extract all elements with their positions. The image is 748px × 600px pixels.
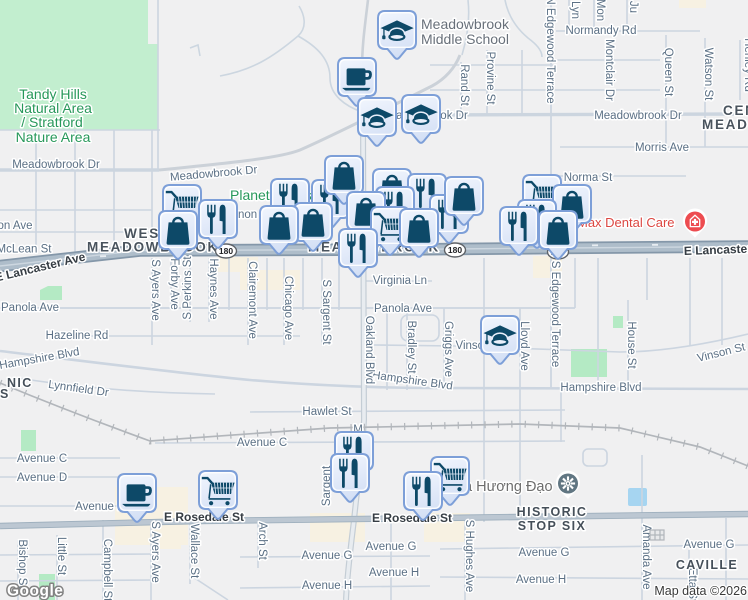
svg-text:on Ave: on Ave — [0, 220, 32, 232]
svg-text:Campbell St: Campbell St — [101, 539, 113, 600]
svg-text:S Edgewood Terrace: S Edgewood Terrace — [549, 261, 561, 368]
svg-text:E Rosedale St: E Rosedale St — [372, 511, 452, 525]
svg-text:Ju: Ju — [627, 1, 639, 13]
svg-text:Little St: Little St — [55, 537, 67, 576]
svg-text:S Hughes Ave: S Hughes Ave — [463, 520, 475, 593]
svg-text:/ Stratford: / Stratford — [21, 114, 82, 130]
svg-text:Chicago Ave: Chicago Ave — [282, 276, 294, 340]
svg-text:CAVILLE: CAVILLE — [676, 558, 738, 572]
svg-text:Watson St: Watson St — [702, 48, 714, 101]
svg-text:Lyn: Lyn — [569, 1, 581, 19]
svg-text:Hazeline Rd: Hazeline Rd — [46, 330, 109, 342]
svg-text:Avenue G: Avenue G — [519, 547, 570, 559]
svg-text:Rand St: Rand St — [458, 64, 470, 106]
svg-text:Meadowbrook Dr: Meadowbrook Dr — [594, 110, 682, 122]
svg-text:S Ayers Ave: S Ayers Ave — [149, 521, 161, 583]
svg-text:Avenue G: Avenue G — [366, 541, 417, 553]
svg-text:STOP SIX: STOP SIX — [518, 519, 586, 533]
svg-text:Arch St: Arch St — [256, 522, 268, 561]
svg-text:Griggs Ave: Griggs Ave — [442, 321, 454, 377]
svg-text:Hampshire Blvd: Hampshire Blvd — [560, 382, 641, 394]
svg-text:Panola Ave: Panola Ave — [1, 302, 59, 314]
svg-text:Meadowbrook Dr: Meadowbrook Dr — [12, 159, 100, 171]
svg-text:Avenue H: Avenue H — [302, 580, 352, 592]
svg-text:Norma St: Norma St — [564, 172, 613, 184]
svg-text:Panola Ave: Panola Ave — [374, 303, 432, 315]
svg-text:House St: House St — [625, 321, 637, 369]
svg-text:Virginia Ln: Virginia Ln — [373, 275, 427, 287]
svg-text:Queen St: Queen St — [662, 48, 674, 97]
svg-text:Provine St: Provine St — [484, 51, 496, 105]
svg-text:Morris Ave: Morris Ave — [635, 142, 689, 154]
svg-text:Oakland Blvd: Oakland Blvd — [363, 316, 375, 384]
svg-text:non: non — [238, 209, 257, 221]
svg-text:Map data ©2026: Map data ©2026 — [654, 584, 747, 598]
svg-text:E Lancaster Av: E Lancaster Av — [684, 241, 748, 258]
svg-text:Middle School: Middle School — [421, 31, 509, 47]
svg-text:S: S — [0, 387, 10, 401]
svg-text:Normandy Rd: Normandy Rd — [566, 25, 637, 37]
svg-text:NIC: NIC — [7, 376, 33, 390]
svg-text:Bradley St: Bradley St — [405, 320, 417, 374]
svg-text:Avenue C: Avenue C — [237, 437, 287, 449]
svg-text:Forby Ave: Forby Ave — [168, 258, 180, 310]
svg-text:Avenue D: Avenue D — [17, 472, 67, 484]
svg-text:S Ayers Ave: S Ayers Ave — [149, 259, 161, 321]
svg-text:Henley Rd: Henley Rd — [742, 38, 748, 92]
svg-text:Meadowbrook: Meadowbrook — [421, 16, 510, 32]
svg-text:Avenue H: Avenue H — [369, 567, 419, 579]
svg-text:Montclair Dr: Montclair Dr — [603, 39, 615, 101]
svg-text:MEADOWBROOK: MEADOWBROOK — [87, 240, 219, 255]
svg-text:N Edgewood Terrace: N Edgewood Terrace — [544, 0, 556, 104]
svg-text:Avenue H: Avenue H — [516, 574, 566, 586]
svg-text:Wallace St: Wallace St — [188, 524, 200, 579]
svg-text:Clairemont Ave: Clairemont Ave — [246, 261, 258, 339]
svg-text:Nature Area: Nature Area — [16, 129, 91, 145]
svg-text:Google: Google — [7, 583, 63, 600]
svg-text:MEADOWBROOK: MEADOWBROOK — [702, 117, 748, 132]
svg-text:Avenue G: Avenue G — [302, 550, 353, 562]
svg-text:Haynes Ave: Haynes Ave — [207, 258, 219, 319]
svg-text:Avenue G: Avenue G — [684, 539, 735, 551]
svg-text:HISTORIC: HISTORIC — [517, 505, 588, 519]
svg-text:S Perkins St: S Perkins St — [182, 256, 194, 320]
svg-text:E Rosedale St: E Rosedale St — [164, 510, 244, 524]
svg-text:CENTRAL: CENTRAL — [723, 103, 748, 118]
svg-text:Avenue C: Avenue C — [17, 453, 67, 465]
svg-text:Hawlet St: Hawlet St — [302, 406, 352, 418]
svg-text:McLean St: McLean St — [0, 244, 52, 256]
svg-text:Mon: Mon — [594, 0, 606, 21]
svg-text:S Sargent St: S Sargent St — [320, 279, 332, 345]
